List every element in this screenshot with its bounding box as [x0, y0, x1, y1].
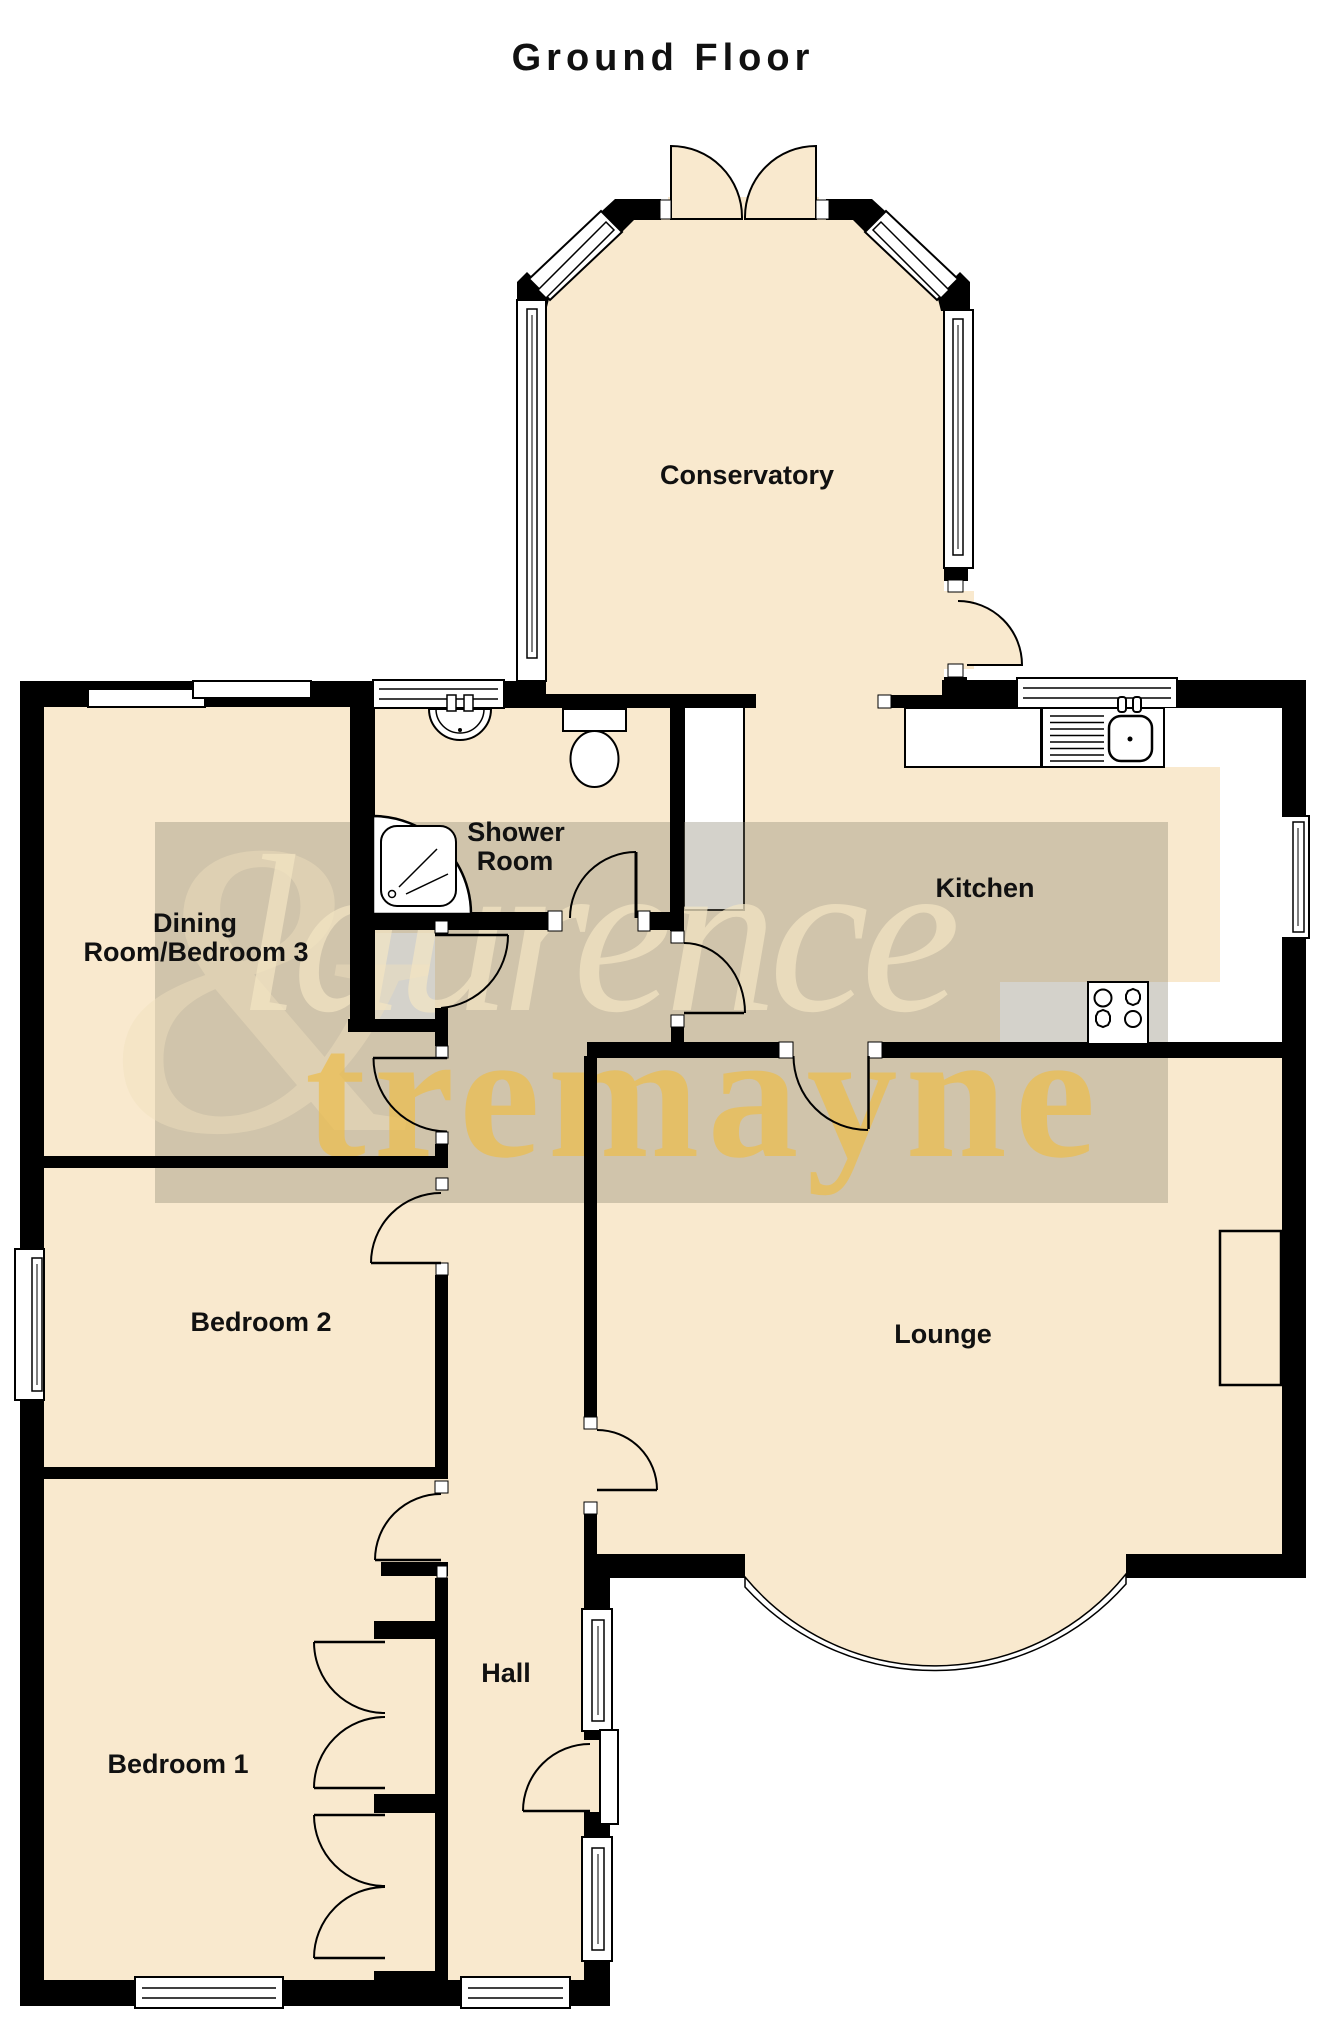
- svg-text:Shower: Shower: [467, 817, 565, 847]
- svg-text:Kitchen: Kitchen: [935, 873, 1034, 903]
- svg-text:Conservatory: Conservatory: [660, 460, 834, 490]
- svg-text:Ground Floor: Ground Floor: [512, 37, 815, 79]
- svg-text:Room/Bedroom 3: Room/Bedroom 3: [83, 937, 308, 967]
- svg-text:Lounge: Lounge: [894, 1319, 991, 1349]
- svg-text:Dining: Dining: [153, 908, 237, 938]
- svg-text:Hall: Hall: [481, 1658, 531, 1688]
- svg-text:Bedroom 1: Bedroom 1: [107, 1749, 248, 1779]
- svg-text:Bedroom 2: Bedroom 2: [190, 1307, 331, 1337]
- svg-text:Room: Room: [477, 846, 554, 876]
